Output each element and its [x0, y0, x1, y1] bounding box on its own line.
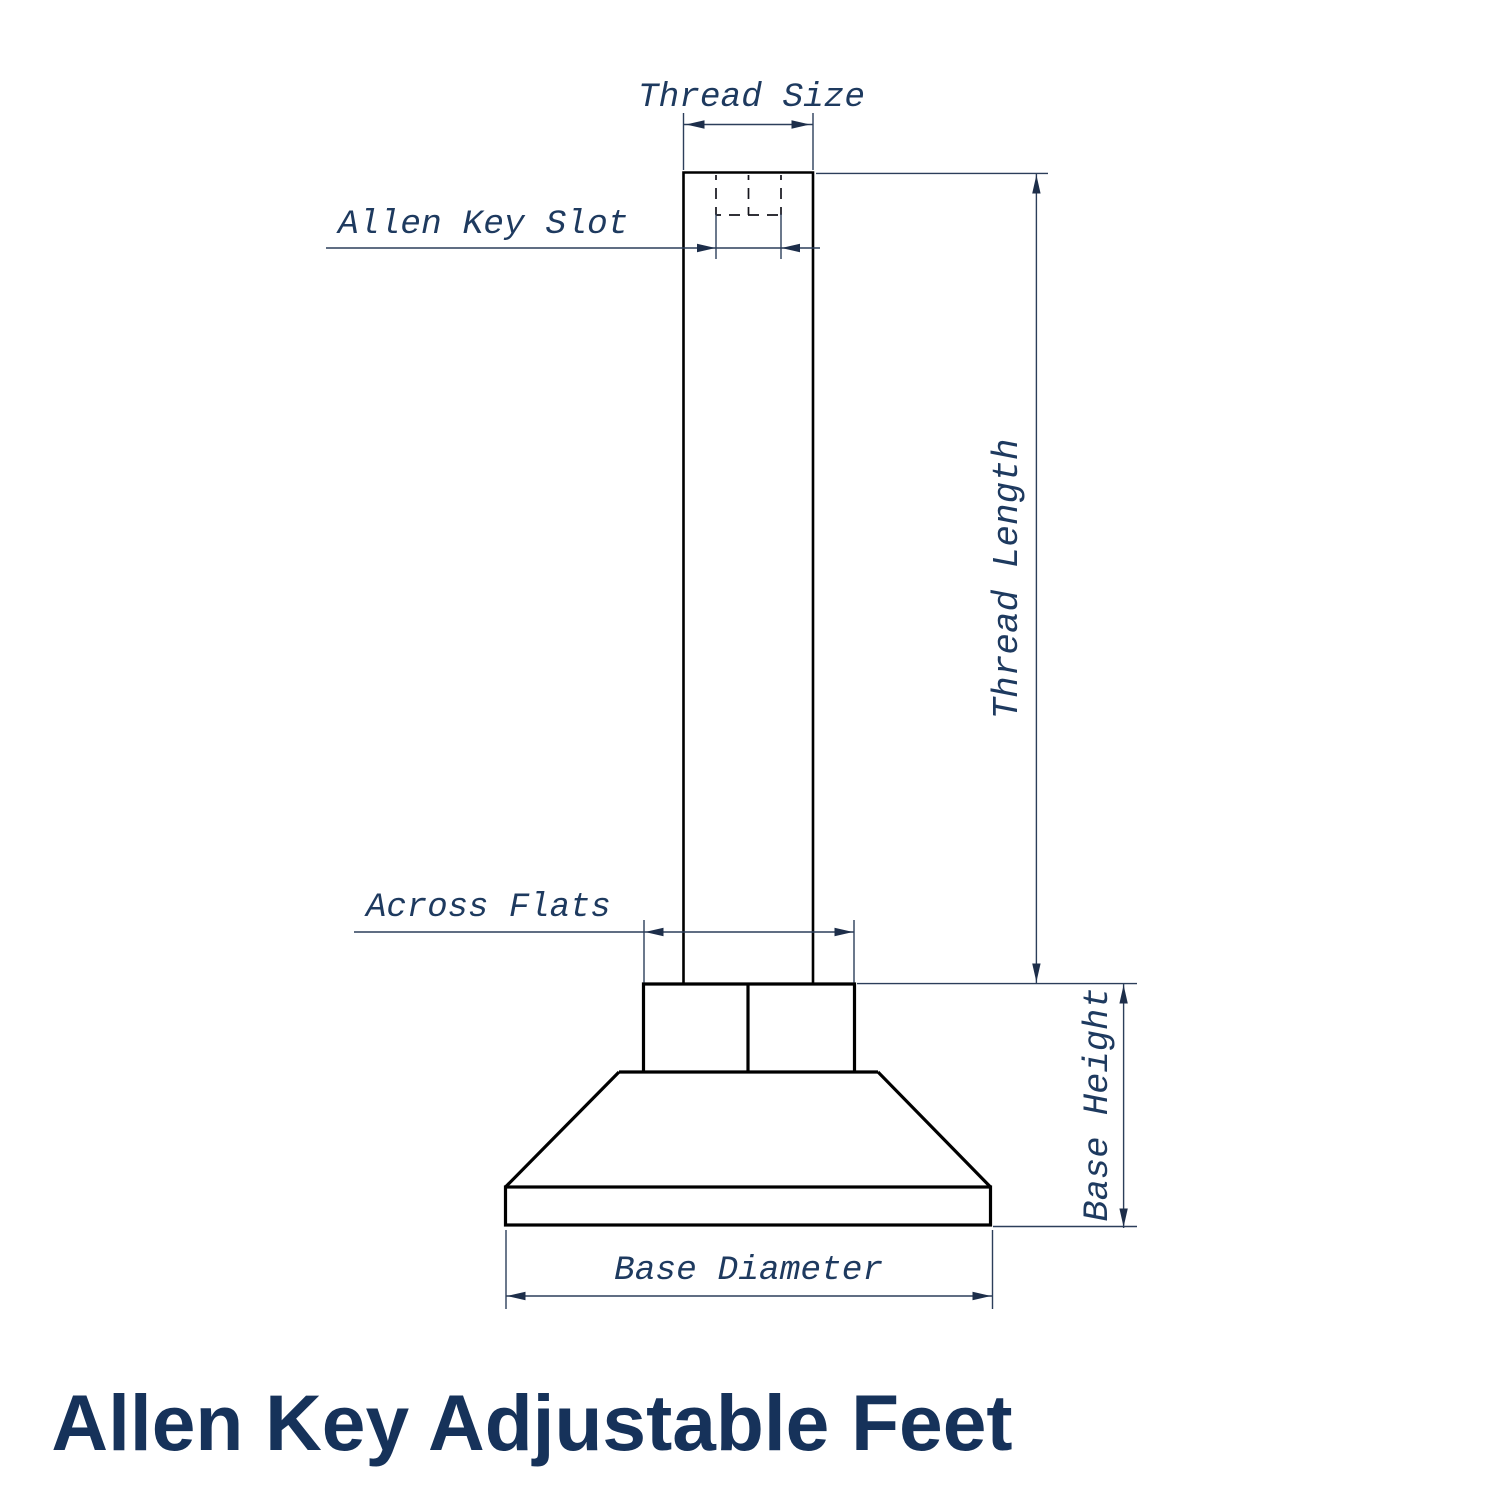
svg-text:Thread Size: Thread Size: [638, 78, 865, 117]
svg-text:Allen Key Slot: Allen Key Slot: [336, 205, 629, 244]
svg-text:Thread Length: Thread Length: [987, 439, 1028, 720]
svg-text:Base Height: Base Height: [1077, 987, 1118, 1221]
svg-text:Allen Key Adjustable Feet: Allen Key Adjustable Feet: [51, 1379, 1012, 1467]
svg-text:Base Diameter: Base Diameter: [614, 1251, 883, 1290]
svg-text:Across Flats: Across Flats: [364, 889, 611, 927]
